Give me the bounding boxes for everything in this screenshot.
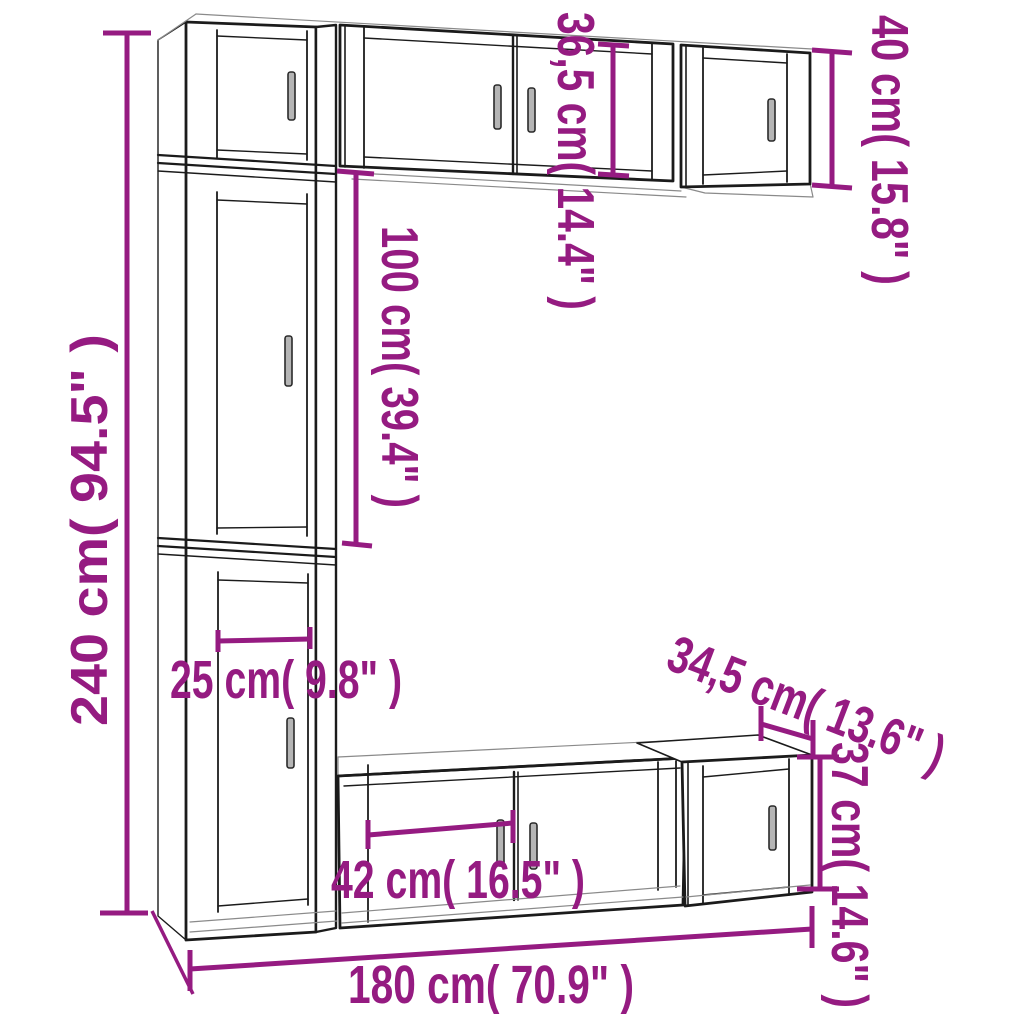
label-bench-door-width: 42 cm( 16.5" ) xyxy=(331,850,585,910)
handle-bottom-right-cabinet xyxy=(769,806,776,850)
handle-top-middle-door-right xyxy=(528,88,535,132)
label-total-width: 180 cm( 70.9" ) xyxy=(348,955,634,1015)
handle-top-middle-door-left xyxy=(494,85,501,129)
handle-top-right-cabinet xyxy=(768,99,775,141)
label-top-cabinet-height: 36,5 cm( 14.4" ) xyxy=(546,12,604,310)
dimension-diagram-page: 240 cm( 94.5" ) 100 cm( 39.4" ) 36,5 cm(… xyxy=(0,0,1024,1024)
handle-bottom-tall-cabinet xyxy=(287,718,294,768)
label-middle-cabinet-height: 100 cm( 39.4" ) xyxy=(370,226,428,508)
dimension-middle-cabinet-height xyxy=(337,171,374,546)
handle-middle-tall-cabinet xyxy=(285,336,292,386)
tall-left-column xyxy=(158,14,337,940)
label-total-height: 240 cm( 94.5" ) xyxy=(61,334,119,726)
top-middle-wall-cabinet xyxy=(340,25,686,197)
furniture-dimension-diagram: 240 cm( 94.5" ) 100 cm( 39.4" ) 36,5 cm(… xyxy=(0,0,1024,1024)
furniture-drawing xyxy=(158,14,813,940)
label-top-right-cabinet-height: 40 cm( 15.8" ) xyxy=(860,15,918,285)
top-right-wall-cabinet xyxy=(681,45,813,197)
label-tall-cabinet-door-width: 25 cm( 9.8" ) xyxy=(170,650,402,710)
dimension-top-right-cabinet-height xyxy=(812,50,852,188)
label-bottom-right-cabinet-height: 37 cm( 14.6" ) xyxy=(820,742,878,1008)
handle-top-left-cabinet xyxy=(288,72,295,120)
